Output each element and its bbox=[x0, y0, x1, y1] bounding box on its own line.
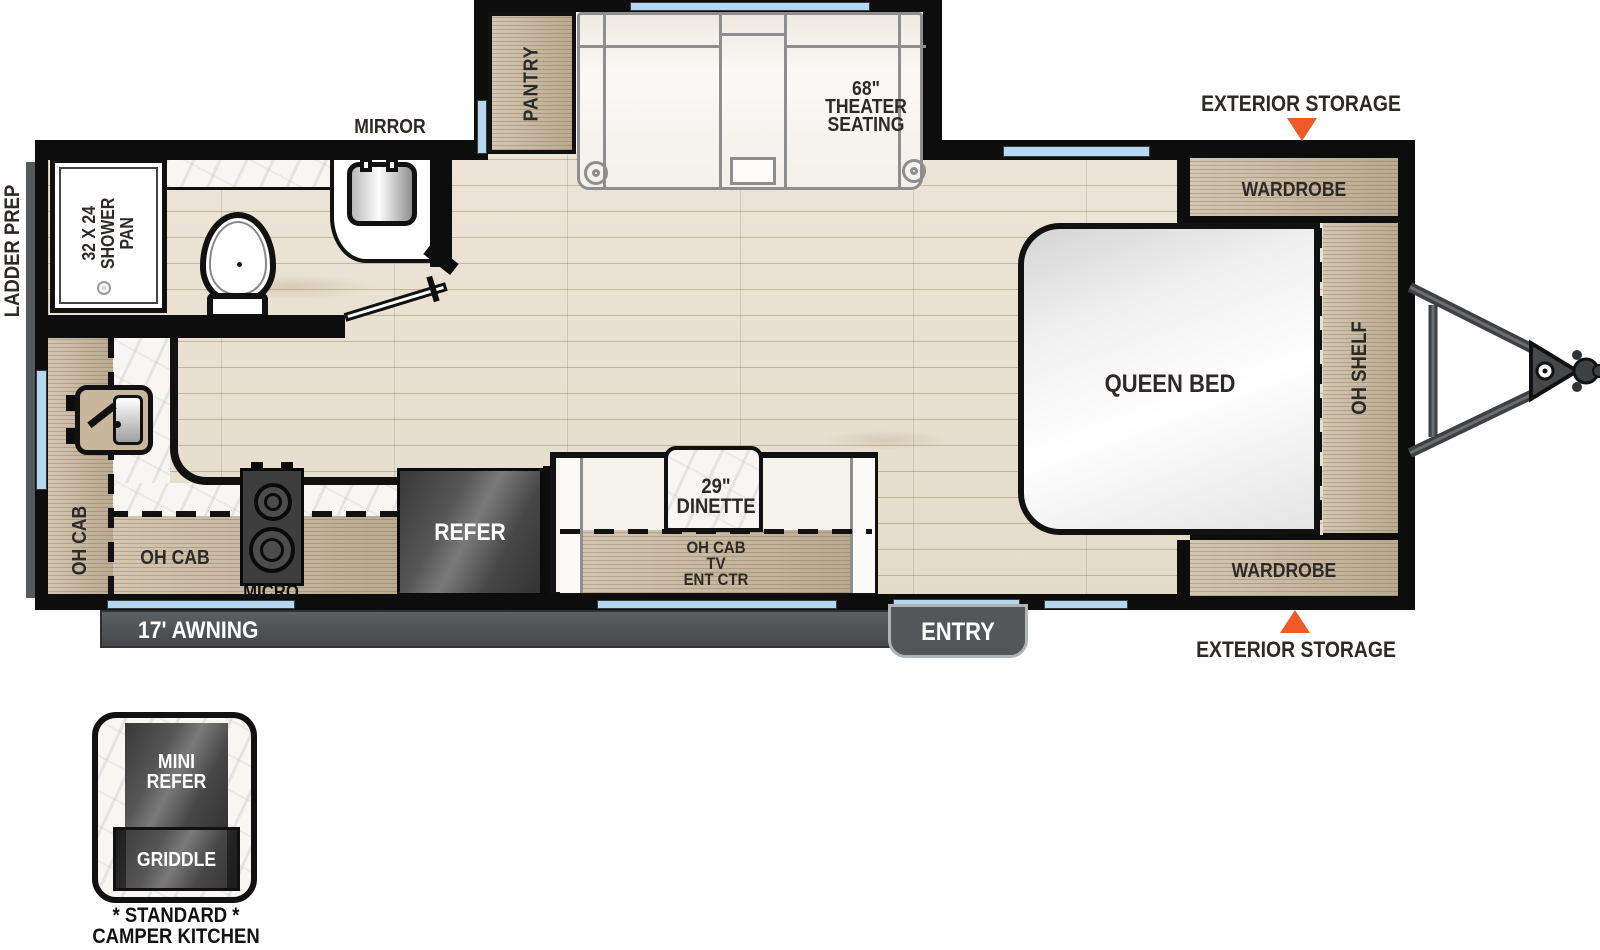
trailer-hitch bbox=[1405, 275, 1600, 475]
burner-large bbox=[249, 527, 295, 573]
dinette-bench-left bbox=[560, 458, 583, 593]
dinette-label: 29"DINETTE bbox=[658, 477, 774, 517]
burner-small bbox=[254, 483, 292, 521]
slideout-wall-right bbox=[923, 0, 942, 160]
bath-faucet bbox=[360, 158, 372, 172]
wardrobe-bottom-divider bbox=[1323, 533, 1398, 540]
window-rear-left bbox=[36, 370, 47, 490]
exterior-storage-top-label: EXTERIOR STORAGE bbox=[1200, 93, 1402, 115]
exterior-storage-bottom-label: EXTERIOR STORAGE bbox=[1193, 639, 1399, 661]
theater-label: 68"THEATERSEATING bbox=[806, 80, 926, 134]
wardrobe-top-line bbox=[1177, 216, 1398, 223]
refer-label: REFER bbox=[406, 521, 534, 545]
window-bottom-dinette bbox=[597, 600, 837, 609]
cupholder-left bbox=[584, 161, 608, 185]
bath-faucet2 bbox=[386, 158, 398, 172]
window-slideout-top bbox=[630, 2, 870, 11]
mirror-label: MIRROR bbox=[337, 117, 443, 137]
wall-top-left bbox=[35, 140, 474, 160]
entry-label: ENTRY bbox=[896, 620, 1019, 645]
wardrobe-top-wall bbox=[1177, 155, 1190, 218]
shower-label: 32 X 24 SHOWER PAN bbox=[50, 158, 167, 308]
wardrobe-bottom-label: WARDROBE bbox=[1192, 561, 1375, 581]
wardrobe-bottom-wall bbox=[1177, 540, 1190, 596]
pantry-label: PANTRY bbox=[488, 12, 576, 154]
window-pantry-side bbox=[477, 100, 487, 154]
window-bottom-bed bbox=[1044, 600, 1128, 609]
kitchen-sink-tab2 bbox=[66, 428, 75, 444]
wardrobe-top-label: WARDROBE bbox=[1202, 180, 1385, 200]
dinette-cab-label: OH CABTVENT CTR bbox=[658, 540, 774, 588]
kitchen-sink-tab1 bbox=[66, 395, 75, 411]
bath-wall-bottom bbox=[35, 315, 345, 338]
stove bbox=[240, 468, 304, 586]
bath-counter-strip bbox=[167, 157, 337, 190]
cupholder-right bbox=[902, 159, 926, 183]
dinette-dash bbox=[560, 529, 872, 534]
kitchen-sink bbox=[75, 385, 153, 455]
queen-bed-label: QUEEN BED bbox=[1056, 372, 1285, 397]
camper-kitchen-caption: * STANDARD *CAMPER KITCHEN bbox=[74, 905, 278, 947]
exterior-storage-bottom-marker bbox=[1280, 610, 1310, 633]
mini-refer-label: MINIREFER bbox=[131, 752, 222, 792]
dinette-bench-right bbox=[850, 458, 875, 593]
exterior-storage-top-marker bbox=[1287, 118, 1317, 141]
console-tray bbox=[730, 157, 776, 185]
oh-shelf-label: OH SHELF bbox=[1323, 288, 1398, 448]
window-bed-top bbox=[1003, 146, 1150, 157]
bed-dash bbox=[1317, 228, 1322, 530]
awning-label: 17' AWNING bbox=[138, 619, 258, 643]
floorplan: 32 X 24 SHOWER PAN bbox=[0, 0, 1600, 950]
oh-cab-left-label: OH CAB bbox=[48, 488, 113, 592]
griddle-label: GRIDDLE bbox=[121, 850, 233, 870]
bath-sink bbox=[347, 162, 417, 226]
ladder-prep-label: LADDER PREP bbox=[0, 165, 28, 337]
oh-cab-bottom-label: OH CAB bbox=[131, 548, 219, 568]
micro-label: MICRO bbox=[240, 583, 302, 602]
